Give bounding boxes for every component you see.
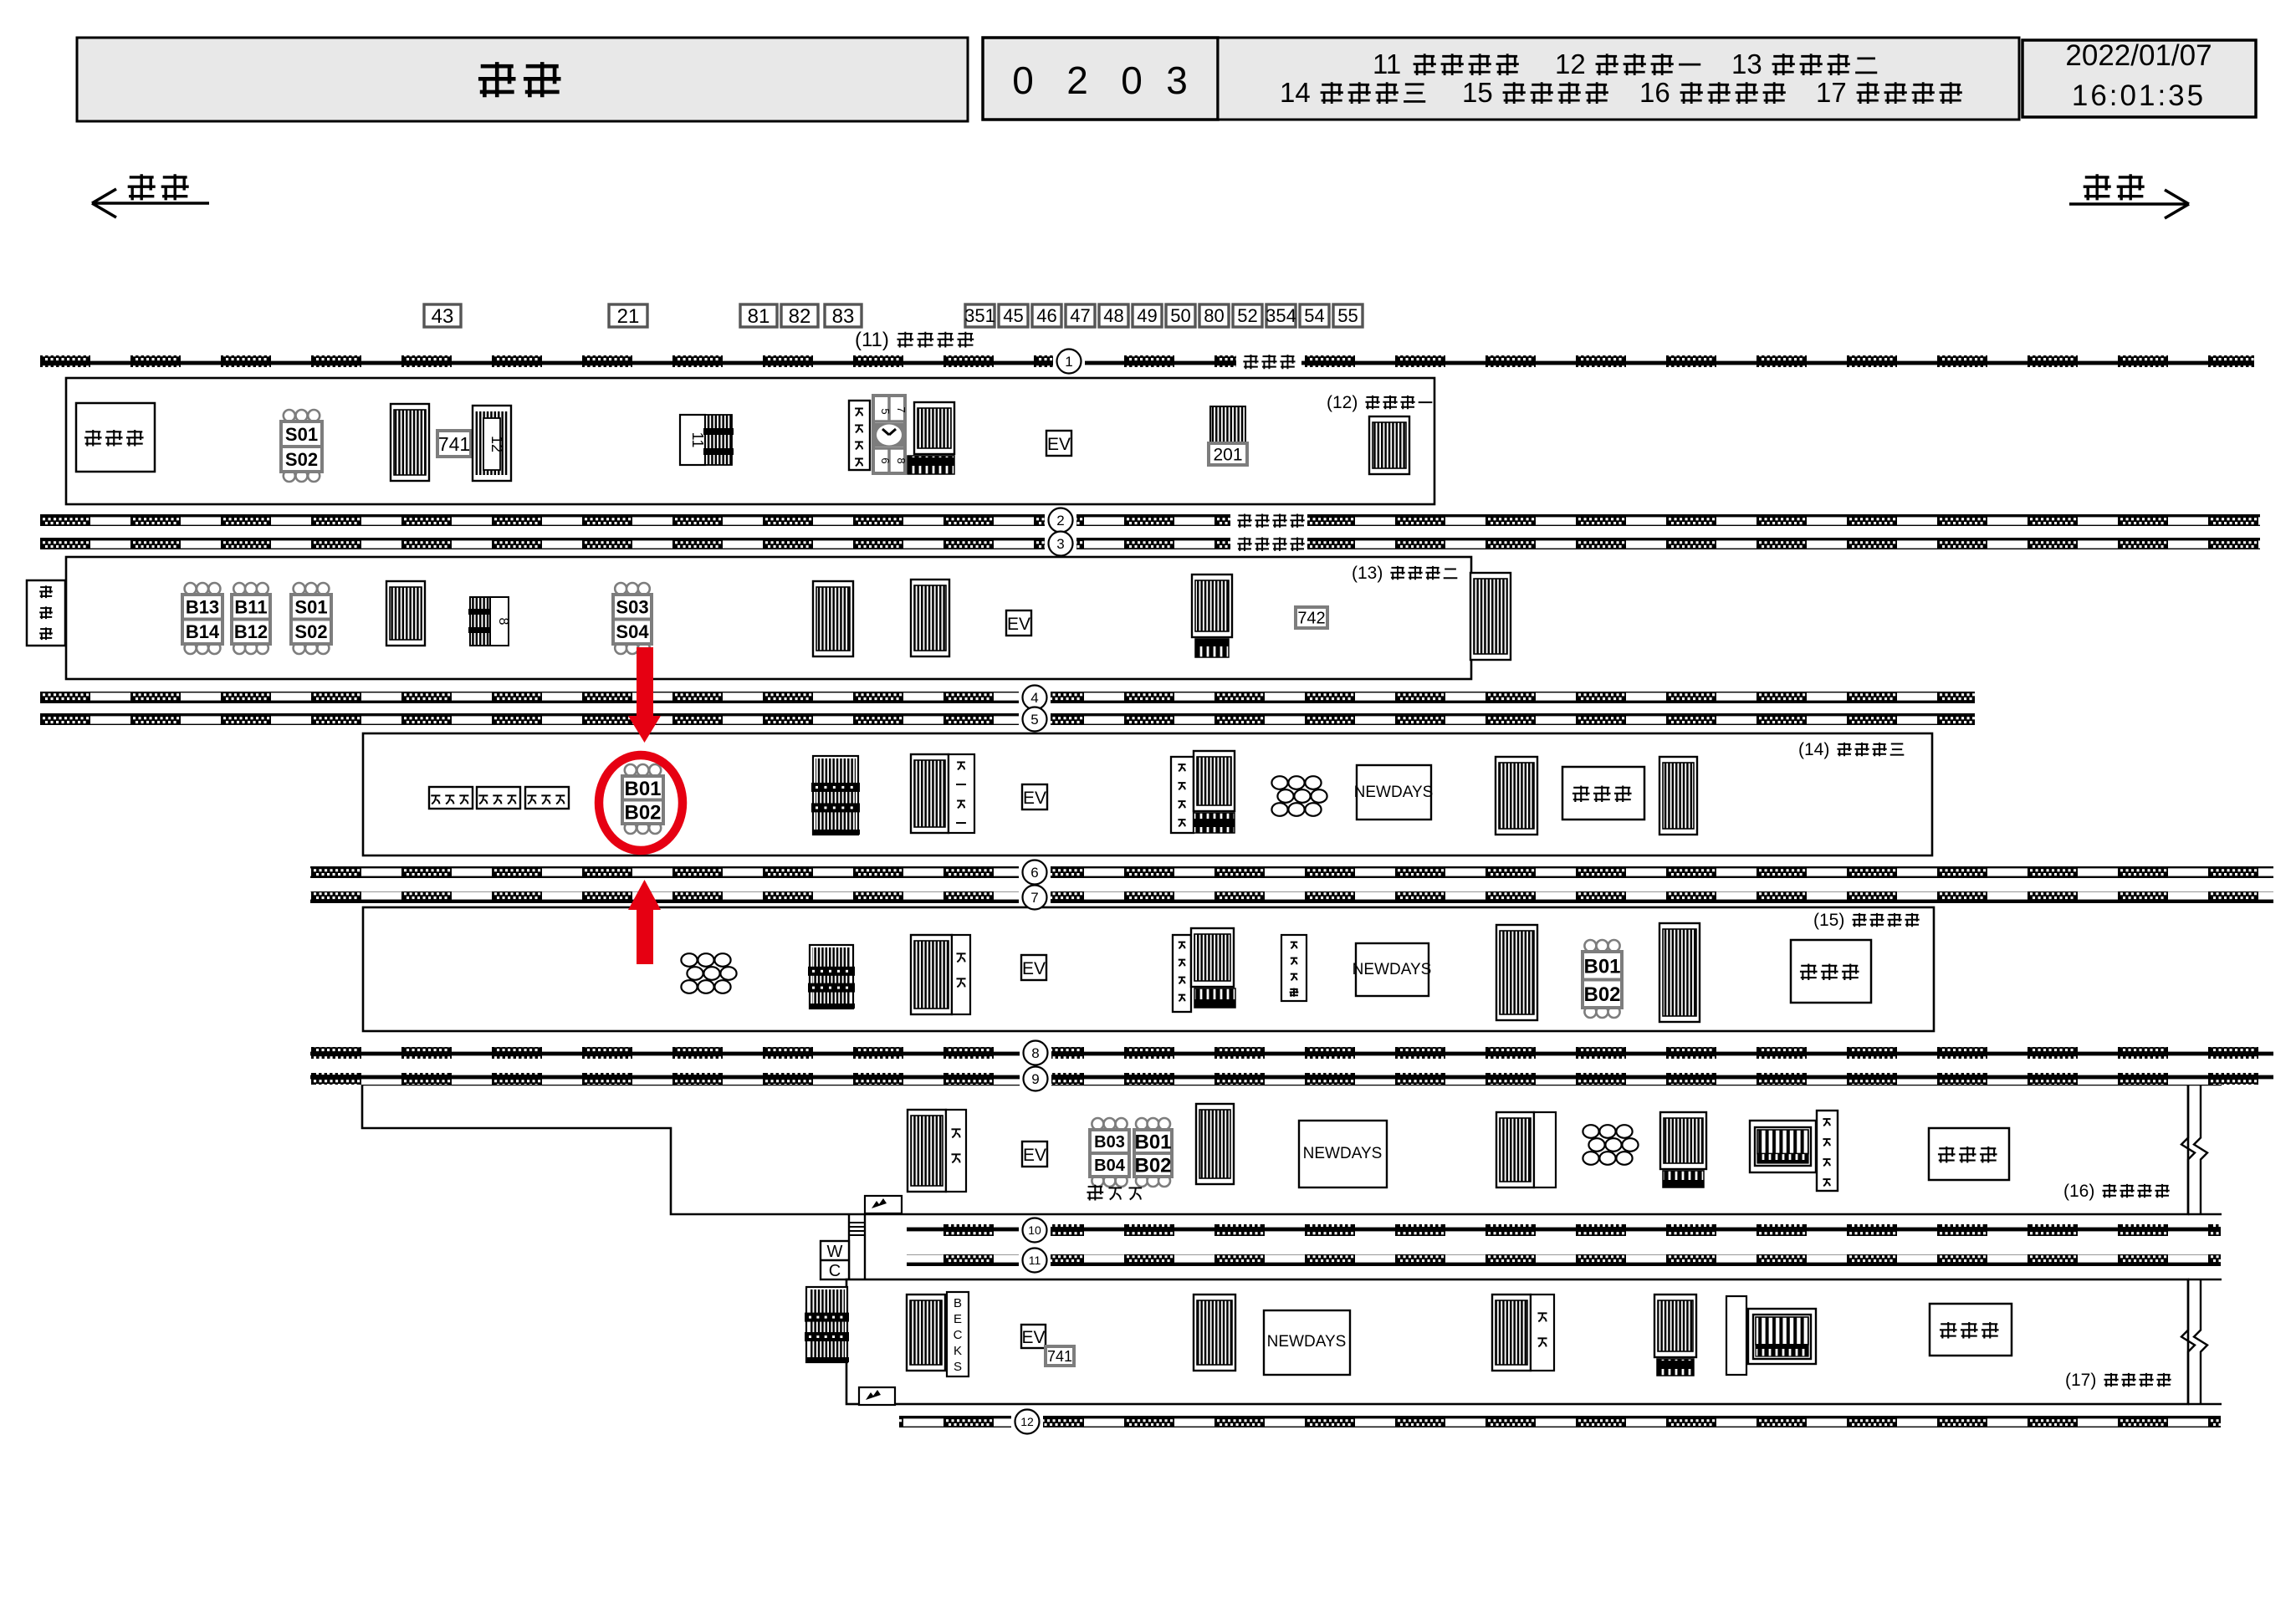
- svg-text:B03: B03: [1094, 1133, 1125, 1152]
- svg-text:2022/01/07: 2022/01/07: [2065, 39, 2212, 72]
- svg-text:B02: B02: [1583, 983, 1620, 1006]
- svg-text:EV: EV: [1047, 435, 1071, 454]
- svg-text:6: 6: [1030, 865, 1038, 881]
- svg-text:EV: EV: [1023, 789, 1046, 808]
- svg-text:742: 742: [1297, 610, 1325, 628]
- svg-text:201: 201: [1213, 446, 1242, 465]
- svg-text:741: 741: [438, 433, 470, 455]
- svg-text:C: C: [954, 1328, 963, 1342]
- svg-text:(12): (12): [1327, 393, 1358, 412]
- svg-text:16: 16: [1639, 77, 1670, 108]
- svg-text:B01: B01: [1134, 1131, 1171, 1154]
- svg-text:16:01:35: 16:01:35: [2072, 79, 2206, 112]
- svg-text:(14): (14): [1798, 740, 1829, 759]
- svg-text:48: 48: [1103, 305, 1123, 326]
- svg-text:B13: B13: [186, 597, 219, 618]
- svg-text:17: 17: [1816, 77, 1847, 108]
- svg-text:(13): (13): [1352, 564, 1383, 583]
- svg-text:0: 0: [1012, 59, 1034, 102]
- svg-text:46: 46: [1036, 305, 1056, 326]
- svg-text:3: 3: [1056, 536, 1064, 552]
- svg-text:B12: B12: [234, 621, 268, 642]
- svg-text:354: 354: [1266, 305, 1296, 326]
- svg-text:B02: B02: [624, 801, 661, 824]
- svg-text:NEWDAYS: NEWDAYS: [1303, 1145, 1383, 1162]
- svg-text:11: 11: [1029, 1254, 1041, 1267]
- svg-text:14: 14: [1280, 77, 1311, 108]
- svg-text:S02: S02: [294, 621, 327, 642]
- svg-text:6: 6: [879, 457, 892, 463]
- svg-text:83: 83: [832, 305, 855, 328]
- svg-text:9: 9: [1031, 1071, 1039, 1087]
- svg-text:EV: EV: [1021, 1328, 1045, 1347]
- svg-text:NEWDAYS: NEWDAYS: [1353, 961, 1432, 978]
- svg-text:52: 52: [1237, 305, 1257, 326]
- svg-text:741: 741: [1047, 1348, 1072, 1365]
- svg-text:S03: S03: [616, 597, 648, 618]
- svg-text:10: 10: [1028, 1223, 1041, 1237]
- svg-text:11: 11: [1373, 49, 1401, 79]
- svg-text:B02: B02: [1134, 1155, 1171, 1177]
- svg-text:50: 50: [1170, 305, 1190, 326]
- svg-text:49: 49: [1137, 305, 1157, 326]
- svg-text:B04: B04: [1094, 1157, 1126, 1175]
- svg-text:55: 55: [1337, 305, 1358, 326]
- svg-text:B11: B11: [234, 597, 267, 618]
- svg-text:12: 12: [488, 436, 505, 452]
- svg-text:EV: EV: [1022, 959, 1046, 978]
- svg-text:(11): (11): [855, 329, 889, 351]
- svg-text:13: 13: [1731, 49, 1762, 79]
- svg-text:82: 82: [789, 305, 811, 328]
- svg-text:2: 2: [1056, 513, 1064, 529]
- svg-text:EV: EV: [1023, 1146, 1046, 1165]
- svg-text:12: 12: [1020, 1415, 1034, 1428]
- svg-text:K: K: [954, 1344, 962, 1358]
- svg-text:12: 12: [1555, 49, 1586, 79]
- svg-text:8: 8: [895, 457, 908, 463]
- svg-text:43: 43: [432, 305, 454, 328]
- svg-text:54: 54: [1304, 305, 1324, 326]
- svg-text:B14: B14: [186, 621, 220, 642]
- svg-text:S02: S02: [285, 449, 318, 470]
- svg-text:15: 15: [1462, 77, 1493, 108]
- svg-text:W: W: [827, 1243, 843, 1261]
- svg-text:7: 7: [1030, 890, 1038, 906]
- svg-text:7: 7: [895, 406, 908, 412]
- svg-text:S: S: [954, 1360, 962, 1374]
- svg-text:S04: S04: [616, 621, 649, 642]
- svg-text:351: 351: [964, 305, 995, 326]
- svg-text:3: 3: [1166, 59, 1188, 102]
- svg-text:(17): (17): [2065, 1371, 2096, 1390]
- svg-text:81: 81: [748, 305, 770, 328]
- svg-text:5: 5: [879, 408, 892, 414]
- svg-text:S01: S01: [294, 597, 327, 618]
- svg-text:1: 1: [1065, 354, 1072, 370]
- svg-text:5: 5: [1030, 712, 1038, 728]
- svg-text:2: 2: [1066, 59, 1088, 102]
- svg-text:EV: EV: [1007, 615, 1030, 634]
- svg-text:S01: S01: [285, 424, 318, 445]
- svg-text:NEWDAYS: NEWDAYS: [1354, 784, 1434, 801]
- svg-text:B01: B01: [1583, 955, 1620, 978]
- svg-text:B01: B01: [624, 778, 661, 800]
- svg-text:8: 8: [1031, 1045, 1039, 1061]
- svg-text:21: 21: [617, 305, 640, 328]
- svg-text:45: 45: [1003, 305, 1023, 326]
- svg-text:(16): (16): [2063, 1182, 2094, 1201]
- svg-text:B: B: [954, 1296, 962, 1310]
- svg-text:4: 4: [1030, 690, 1038, 706]
- svg-text:80: 80: [1204, 305, 1224, 326]
- svg-text:(15): (15): [1813, 911, 1844, 930]
- svg-text:NEWDAYS: NEWDAYS: [1267, 1333, 1347, 1351]
- svg-text:47: 47: [1070, 305, 1090, 326]
- svg-text:0: 0: [1121, 59, 1143, 102]
- svg-text:8: 8: [496, 618, 510, 626]
- svg-text:C: C: [829, 1262, 841, 1280]
- svg-text:E: E: [954, 1312, 962, 1326]
